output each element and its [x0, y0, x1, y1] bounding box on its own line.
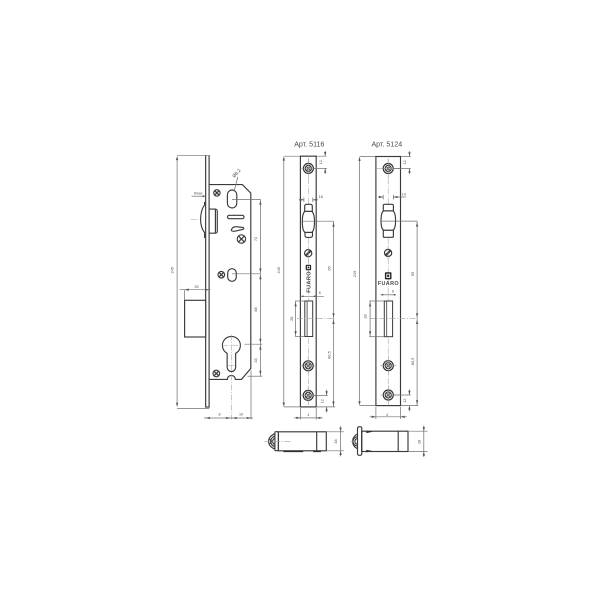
svg-text:Арт. 5124: Арт. 5124: [371, 140, 402, 148]
svg-text:8: 8: [392, 290, 394, 294]
svg-text:245: 245: [352, 271, 357, 278]
svg-text:18: 18: [416, 440, 421, 444]
svg-text:16: 16: [319, 195, 323, 199]
svg-text:25: 25: [194, 285, 198, 289]
svg-text:8: 8: [218, 413, 220, 417]
svg-text:12: 12: [319, 160, 323, 164]
svg-text:95: 95: [410, 272, 415, 276]
svg-text:72: 72: [253, 237, 258, 241]
svg-text:14: 14: [402, 192, 406, 196]
svg-text:88: 88: [253, 307, 258, 311]
svg-text:12: 12: [403, 399, 407, 403]
svg-text:10: 10: [239, 413, 243, 417]
svg-text:28: 28: [363, 314, 368, 318]
svg-text:8: 8: [319, 291, 321, 295]
svg-text:16: 16: [333, 439, 338, 443]
svg-text:28: 28: [289, 317, 294, 321]
svg-text:Арт. 5116: Арт. 5116: [294, 140, 324, 148]
svg-text:4: 4: [386, 413, 388, 417]
svg-text:245: 245: [170, 267, 175, 274]
svg-text:FUARO: FUARO: [306, 271, 312, 293]
svg-text:80,5: 80,5: [326, 351, 331, 359]
svg-text:8max: 8max: [194, 191, 203, 195]
svg-text:33: 33: [253, 358, 258, 362]
svg-text:80,5: 80,5: [410, 358, 415, 366]
svg-text:12: 12: [320, 399, 324, 403]
svg-text:12: 12: [403, 160, 407, 164]
svg-text:4: 4: [307, 413, 309, 417]
svg-text:245: 245: [276, 267, 281, 274]
svg-text:FUARO: FUARO: [378, 281, 399, 287]
svg-text:95: 95: [326, 266, 331, 270]
